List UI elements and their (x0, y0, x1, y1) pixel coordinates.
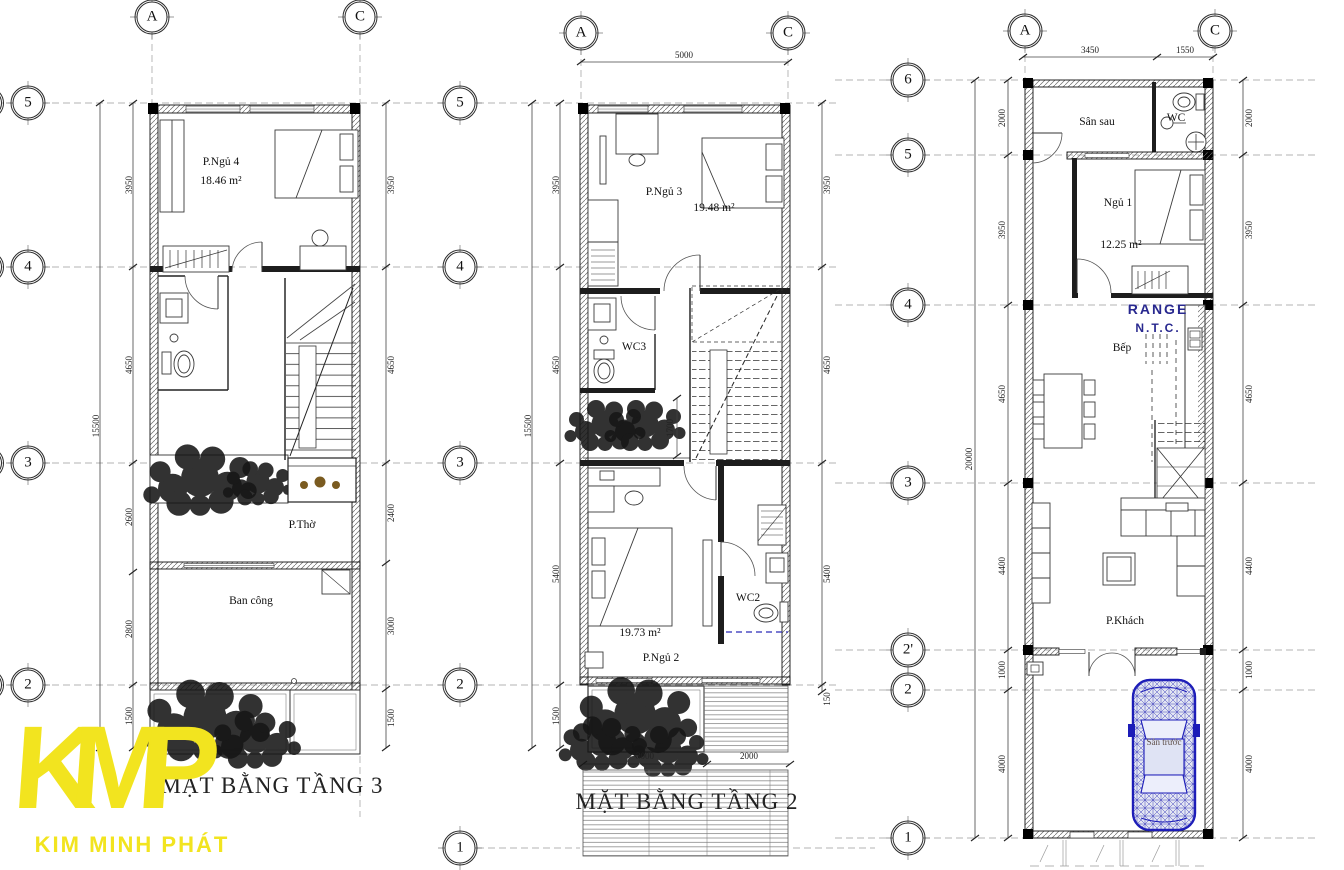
dim-f2-bottom-1: 2000 (740, 751, 758, 761)
grid-bubble-f1-col-a: A (1010, 16, 1041, 47)
dim-f3-right-0: 3950 (386, 176, 396, 194)
dim-f2-left-3: 1500 (551, 707, 561, 725)
dim-f1-right-3: 4400 (1244, 557, 1254, 575)
room-label-kitchen: Bếp (1113, 342, 1132, 354)
dim-f1-left-5: 4000 (997, 755, 1007, 773)
dim-f2-right-1: 4650 (822, 356, 832, 374)
kmp-logo-wordmark: KIM MINH PHÁT (22, 832, 242, 858)
dim-f1-right-4: 1000 (1244, 661, 1254, 679)
note-range-line2: N.T.C. (1135, 321, 1180, 335)
room-area-bedroom2: 19.73 m² (619, 627, 660, 639)
grid-bubble-f2-row-5: 5 (445, 88, 476, 119)
room-label-frontyard: Sân trước (1147, 737, 1182, 747)
dim-f3-right-1: 4650 (386, 356, 396, 374)
grid-bubble-f2-row-1: 1 (445, 833, 476, 864)
blueprint-canvas: A C 5 4 3 2 A C 5 4 3 2 1 A C 6 5 4 3 2'… (0, 0, 1344, 870)
dim-f2-left-1: 4650 (551, 356, 561, 374)
kmp-logo-monogram: KMP (9, 700, 196, 836)
grid-bubble-f3-col-a: A (137, 2, 168, 33)
dim-f1-total-left: 20000 (964, 448, 974, 471)
dim-f3-left-3: 2800 (124, 620, 134, 638)
dim-f2-right-0: 3950 (822, 176, 832, 194)
room-label-living: P.Khách (1106, 615, 1144, 627)
dim-f2-void: 1700 (665, 419, 675, 437)
dim-f1-left-0: 2000 (997, 109, 1007, 127)
grid-bubble-f1-row-1: 1 (893, 823, 924, 854)
grid-bubble-f2-col-a: A (566, 18, 597, 49)
dim-f1-top-0: 3450 (1081, 45, 1099, 55)
grid-bubble-f3-row-5: 5 (13, 88, 44, 119)
grid-bubble-f1-row-5: 5 (893, 140, 924, 171)
dim-f2-total-left: 15500 (523, 415, 533, 438)
dim-f1-left-2: 4650 (997, 385, 1007, 403)
room-area-bedroom1: 12.25 m² (1100, 239, 1141, 251)
dim-f3-left-0: 3950 (124, 176, 134, 194)
grid-bubble-f3-col-c: C (345, 2, 376, 33)
dim-f2-bottom-0: 3000 (636, 751, 654, 761)
dim-f3-left-2: 2600 (124, 508, 134, 526)
grid-bubble-f3-row-3: 3 (13, 448, 44, 479)
grid-bubble-f3-row-4: 4 (13, 252, 44, 283)
room-label-bedroom1: Ngủ 1 (1104, 197, 1132, 209)
dim-f1-right-0: 2000 (1244, 109, 1254, 127)
room-label-wc1: WC (1167, 112, 1186, 124)
dim-f1-left-3: 4400 (997, 557, 1007, 575)
room-label-altar: P.Thờ (289, 519, 316, 531)
dim-f2-left-2: 5400 (551, 565, 561, 583)
dim-f3-total-left: 15500 (91, 415, 101, 438)
dim-f2-left-0: 3950 (551, 176, 561, 194)
dim-f2-right-2: 5400 (822, 565, 832, 583)
dim-f1-right-2: 4650 (1244, 385, 1254, 403)
grid-bubble-f1-row-6: 6 (893, 65, 924, 96)
dim-f1-top-1: 1550 (1176, 45, 1194, 55)
dim-f1-left-4: 1000 (997, 661, 1007, 679)
dim-f3-right-3: 3000 (386, 617, 396, 635)
room-label-balcony: Ban công (229, 595, 273, 607)
dim-f3-left-1: 4650 (124, 356, 134, 374)
dim-f1-right-1: 3950 (1244, 221, 1254, 239)
title-floor2: MẶT BẰNG TẦNG 2 (575, 789, 798, 815)
room-label-bedroom2: P.Ngủ 2 (643, 652, 679, 664)
grid-bubble-f2-row-3: 3 (445, 448, 476, 479)
grid-bubble-f2-row-4: 4 (445, 252, 476, 283)
grid-bubble-f2-col-c: C (773, 18, 804, 49)
room-label-wc2: WC2 (736, 592, 760, 604)
dim-f3-right-2: 2400 (386, 504, 396, 522)
grid-bubble-f2-row-2: 2 (445, 670, 476, 701)
grid-bubble-f1-row-2b: 2' (893, 635, 924, 666)
dim-f2-right-3: 150 (822, 692, 832, 706)
grid-bubble-f1-row-3: 3 (893, 468, 924, 499)
room-area-bedroom4: 18.46 m² (200, 175, 241, 187)
grid-bubble-f1-col-c: C (1200, 16, 1231, 47)
room-label-bedroom4: P.Ngủ 4 (203, 156, 239, 168)
dim-f1-left-1: 3950 (997, 221, 1007, 239)
dim-f1-right-5: 4000 (1244, 755, 1254, 773)
grid-bubble-f1-row-4: 4 (893, 290, 924, 321)
room-label-backyard: Sân sau (1079, 116, 1114, 128)
grid-bubble-f1-row-2: 2 (893, 675, 924, 706)
dim-f3-right-4: 1500 (386, 709, 396, 727)
room-label-bedroom3: P.Ngủ 3 (646, 186, 682, 198)
grid-bubble-f3-row-2: 2 (13, 670, 44, 701)
dim-f2-top: 5000 (675, 50, 693, 60)
room-label-wc3: WC3 (622, 341, 646, 353)
room-area-bedroom3: 19.48 m² (693, 202, 734, 214)
note-range-line1: RANGE (1128, 301, 1189, 317)
kmp-logo: KMP KIM MINH PHÁT (8, 736, 248, 866)
